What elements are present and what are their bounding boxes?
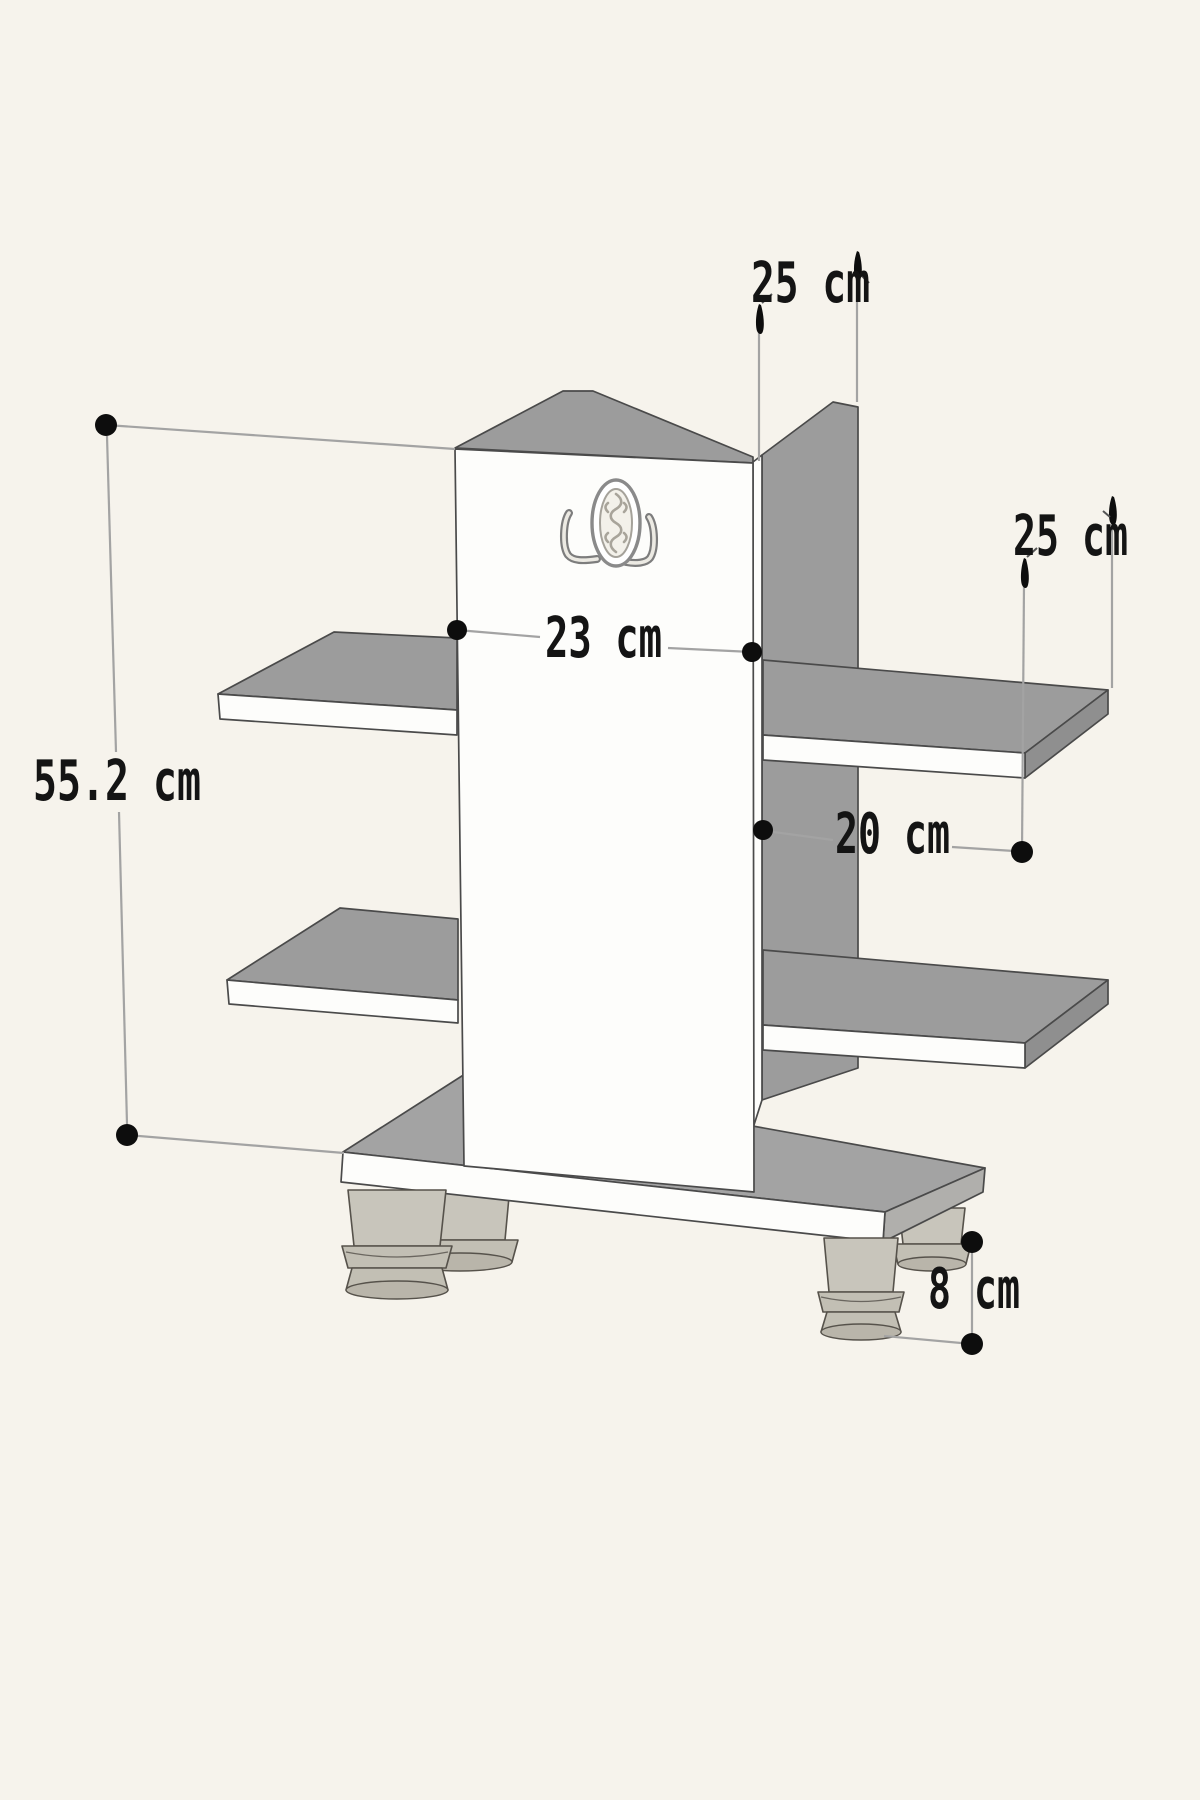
shelf-upper-right: [763, 660, 1108, 778]
leg-front-left: [342, 1190, 452, 1299]
dim-width-label: 23 cm: [545, 606, 662, 671]
dimension-dot: [447, 620, 467, 640]
dim-leg-height-label: 8 cm: [928, 1257, 1020, 1322]
dimension-dot: [116, 1124, 138, 1146]
dim-top-depth-label: 25 cm: [751, 251, 870, 316]
dimension-dot: [753, 820, 773, 840]
dimension-dot: [961, 1231, 983, 1253]
dimension-dot: [742, 642, 762, 662]
shelf-unit: [218, 391, 1108, 1340]
dimension-drawing: 55.2 cm 23 cm 25 cm 25 cm 20 cm: [0, 0, 1200, 1800]
dimension-dot: [1011, 841, 1033, 863]
dimension-dot: [961, 1333, 983, 1355]
leg-front-right: [818, 1238, 904, 1340]
shelf-lower-right: [763, 950, 1108, 1068]
shelf-upper-left: [218, 632, 457, 735]
dim-shelf-depth-label: 25 cm: [1013, 504, 1128, 569]
dimension-dot: [95, 414, 117, 436]
dim-height-label: 55.2 cm: [33, 749, 201, 814]
dimension-shelf-depth: 25 cm: [1013, 496, 1128, 852]
dim-shelf-gap-label: 20 cm: [835, 802, 950, 867]
dimension-height: 55.2 cm: [33, 414, 455, 1153]
drawing-canvas: 55.2 cm 23 cm 25 cm 25 cm 20 cm: [0, 0, 1200, 1800]
shelf-lower-left: [227, 908, 458, 1023]
